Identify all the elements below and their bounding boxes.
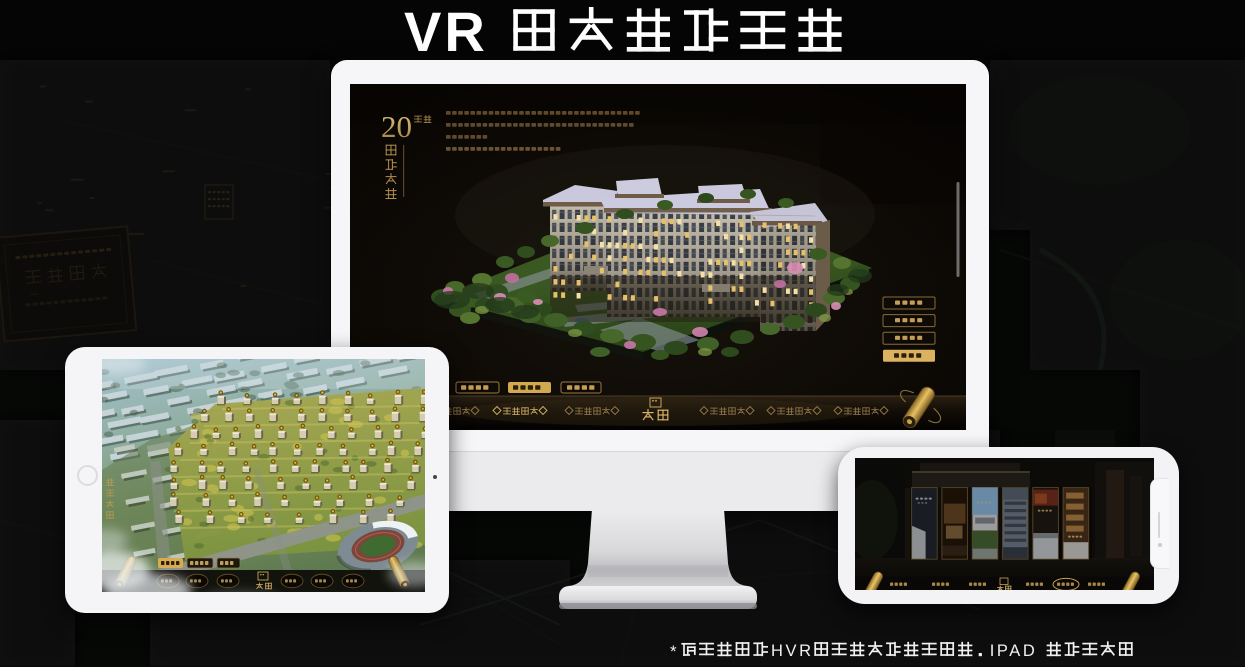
svg-text:VR: VR [404,0,488,60]
svg-text:20: 20 [381,109,412,144]
svg-text:IPAD: IPAD [990,642,1038,660]
svg-text:*: * [670,642,677,661]
svg-text:HVR: HVR [771,642,814,660]
